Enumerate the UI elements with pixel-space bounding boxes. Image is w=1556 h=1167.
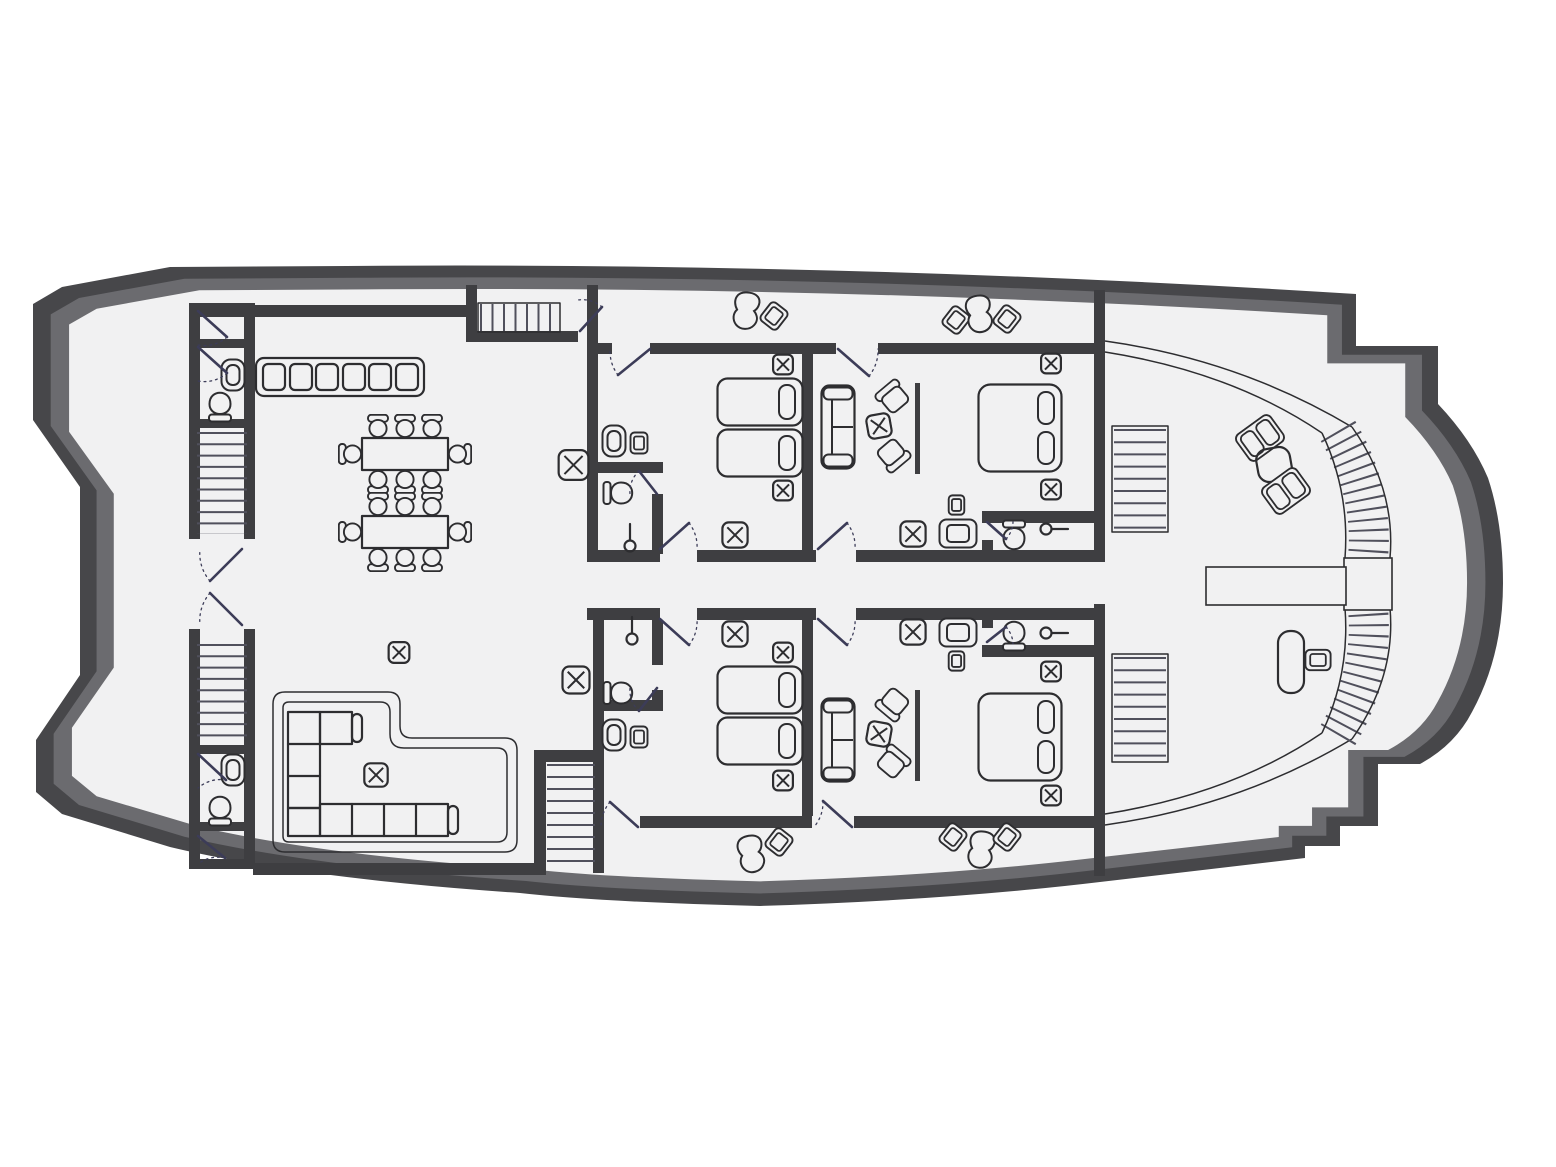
tv-line <box>915 690 920 781</box>
dining-chair <box>395 415 415 437</box>
sofa <box>822 386 855 469</box>
dining-chair <box>368 493 388 515</box>
sink <box>222 755 245 786</box>
dining-chair <box>422 471 442 493</box>
ottoman-x <box>900 619 925 644</box>
dining-chair <box>368 471 388 493</box>
dining-table <box>362 438 448 470</box>
toilet <box>604 682 633 704</box>
dining-chair <box>422 415 442 437</box>
sink <box>603 720 626 751</box>
tv-line <box>915 383 920 474</box>
sink <box>222 360 245 391</box>
dining-chair <box>449 522 471 542</box>
dining-chair <box>368 549 388 571</box>
wardrobe-x <box>559 450 589 480</box>
single-bed <box>718 379 803 426</box>
single-bed <box>718 718 803 765</box>
single-bed <box>718 667 803 714</box>
nightstand-x <box>773 355 793 375</box>
side-table-x <box>389 642 410 663</box>
toilet <box>209 393 231 422</box>
dining-chair <box>395 549 415 571</box>
toilet <box>604 482 633 504</box>
dining-chair <box>449 444 471 464</box>
gangway-bench <box>1206 567 1346 605</box>
double-bed <box>979 385 1062 472</box>
nightstand-x <box>773 643 793 663</box>
stool <box>949 651 965 670</box>
dining-chair <box>422 549 442 571</box>
sofa <box>822 699 855 782</box>
dining-chair <box>422 493 442 515</box>
tv-cabinet <box>940 619 977 647</box>
coffee-table-x <box>865 720 892 747</box>
tv-cabinet <box>940 520 977 548</box>
stool <box>631 433 648 454</box>
nightstand-x <box>1041 662 1061 682</box>
nightstand-x <box>1041 786 1061 806</box>
desk-chair <box>1305 650 1330 670</box>
aft-side-stairs-port <box>1112 426 1168 532</box>
dining-chair <box>339 444 361 464</box>
yacht-deck-plan: motor-yacht main deck floor plan <box>0 0 1556 1167</box>
nightstand-x <box>1041 354 1061 374</box>
sink <box>603 426 626 457</box>
ottoman-x <box>900 521 925 546</box>
nightstand-x <box>1041 480 1061 500</box>
stool <box>631 727 648 748</box>
single-bed <box>718 430 803 477</box>
dining-chair <box>395 493 415 515</box>
stool <box>949 495 965 514</box>
dining-chair <box>368 415 388 437</box>
toilet <box>1003 521 1025 550</box>
dining-chair <box>395 471 415 493</box>
double-bed <box>979 694 1062 781</box>
wardrobe-x <box>563 667 590 694</box>
ottoman-x <box>722 522 747 547</box>
ottoman-x <box>722 621 747 646</box>
stern-landing <box>1344 558 1392 610</box>
nightstand-x <box>773 481 793 501</box>
toilet <box>209 797 231 826</box>
dining-chair <box>339 522 361 542</box>
coffee-table-x <box>364 763 387 786</box>
floor-plan-canvas: motor-yacht main deck floor plan <box>0 0 1556 1167</box>
dining-table <box>362 516 448 548</box>
nightstand-x <box>773 771 793 791</box>
coffee-table-x <box>865 412 892 439</box>
